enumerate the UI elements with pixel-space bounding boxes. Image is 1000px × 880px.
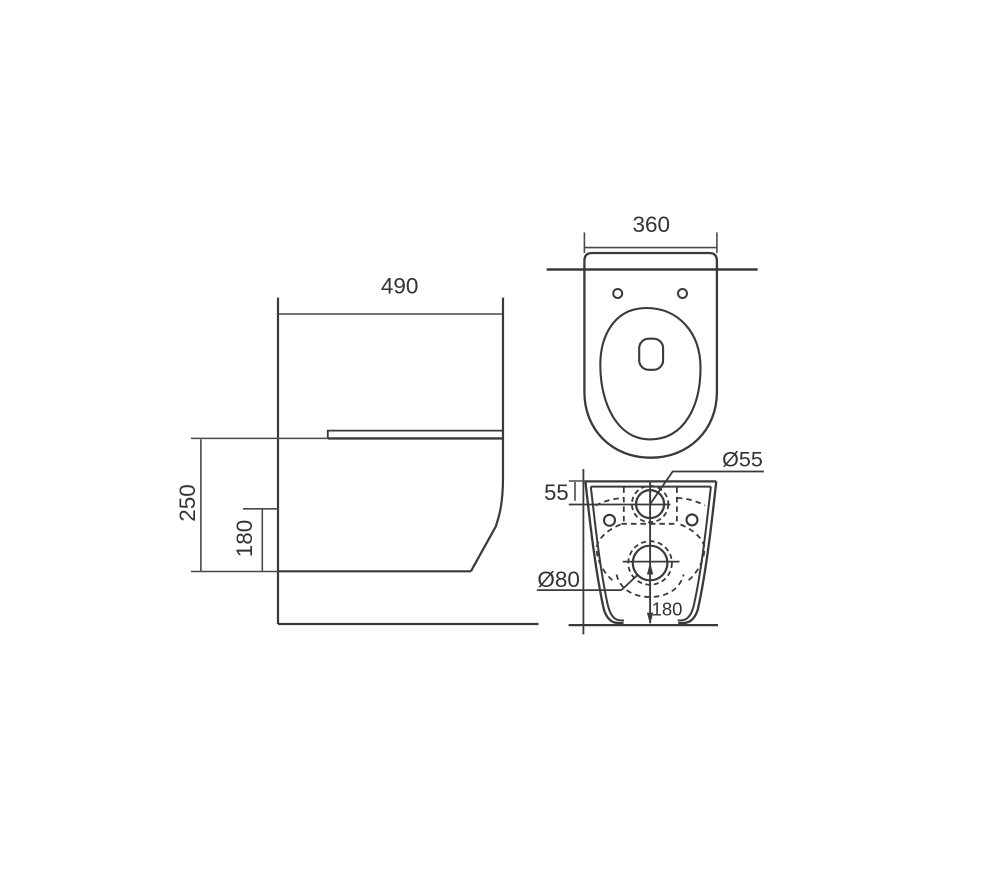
svg-text:490: 490 xyxy=(381,274,419,299)
svg-text:55: 55 xyxy=(544,480,568,505)
svg-text:Ø55: Ø55 xyxy=(722,448,763,472)
svg-text:180: 180 xyxy=(232,520,257,558)
svg-text:250: 250 xyxy=(175,484,200,522)
svg-text:180: 180 xyxy=(652,599,683,620)
svg-text:Ø80: Ø80 xyxy=(537,567,580,592)
svg-text:360: 360 xyxy=(633,212,671,237)
